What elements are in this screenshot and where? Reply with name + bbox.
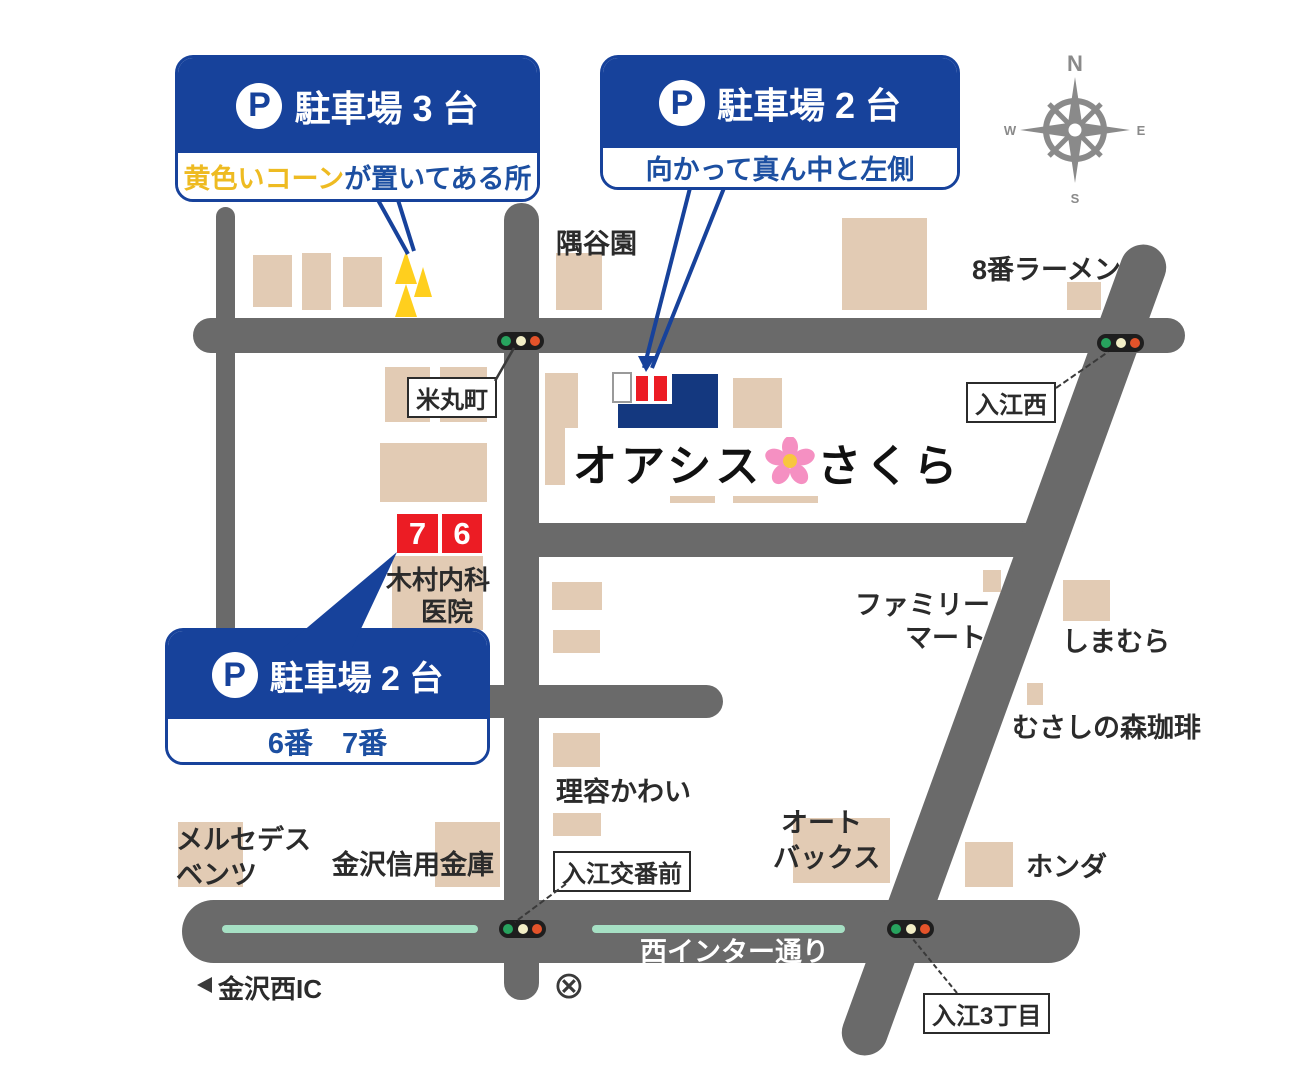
- traffic-light-irie3chome: [887, 920, 934, 938]
- parking-icon: P: [659, 80, 705, 126]
- building-shimamura: [1063, 580, 1110, 621]
- building: [553, 733, 600, 767]
- road-left-vertical: [216, 207, 235, 637]
- compass-rose: N E S W: [1003, 55, 1148, 210]
- callout-parking2-left-header: P 駐車場 2 台: [168, 631, 487, 719]
- intersection-label-irienishi: 入江西: [966, 382, 1056, 423]
- cherry-blossom-icon: [765, 437, 815, 487]
- parking-spot-red: [634, 374, 650, 403]
- building: [552, 582, 602, 610]
- callout-parking2-left-title: 駐車場 2 台: [270, 651, 444, 700]
- building: [733, 378, 782, 430]
- place-label-kimura-clinic-2: 医院: [421, 592, 473, 629]
- place-label-mercedes-2: ベンツ: [176, 853, 257, 892]
- place-label-autobacs-1: オート: [781, 801, 862, 840]
- place-label-musashino-mori-coffee: むさしの森珈琲: [1012, 706, 1201, 745]
- intersection-label-irie3chome: 入江3丁目: [923, 993, 1050, 1034]
- ic-direction-arrow-icon: [197, 977, 212, 993]
- road-middle-horizontal-lower: [488, 685, 723, 718]
- place-label-autobacs-2: バックス: [773, 836, 880, 875]
- road-middle-horizontal-upper: [505, 523, 1055, 557]
- yellow-cone-icon: [395, 284, 417, 317]
- road-label-nishi-inter-dori: 西インター通り: [640, 930, 829, 969]
- building-sumiyaen: [556, 253, 602, 310]
- compass-n: N: [1067, 55, 1083, 76]
- callout-parking3-note-rest: が置いてある所: [344, 157, 531, 196]
- callout-parking2-top-header: P 駐車場 2 台: [603, 58, 957, 148]
- road-middle-vertical: [504, 203, 539, 1000]
- road-median-line: [222, 925, 478, 933]
- place-label-kanazawa-nishi-ic: 金沢西IC: [218, 969, 322, 1006]
- building: [253, 255, 292, 307]
- parking-icon: P: [236, 83, 282, 129]
- traffic-light-irienishi: [1097, 334, 1144, 352]
- building-honda: [965, 842, 1013, 887]
- place-label-riyo-kawai: 理容かわい: [556, 770, 691, 809]
- callout-parking2-top: P 駐車場 2 台 向かって真ん中と左側: [600, 55, 960, 190]
- building-musashino: [1027, 683, 1043, 705]
- traffic-light-iriekobanmae: [499, 920, 546, 938]
- intersection-label-yonemarucho: 米丸町: [407, 377, 497, 418]
- place-label-sumiyaen: 隅谷園: [556, 222, 637, 261]
- building: [553, 630, 600, 653]
- traffic-light-yonemarucho: [497, 332, 544, 350]
- destination-name-part2: さくら: [817, 430, 961, 494]
- parking-number-6: 6: [442, 514, 482, 553]
- building: [302, 253, 331, 310]
- callout-parking2-left-note: 6番 7番: [168, 719, 487, 762]
- road-top-horizontal: [193, 318, 1185, 353]
- place-label-shimamura: しまむら: [1062, 620, 1170, 659]
- callout-parking2-top-title: 駐車場 2 台: [717, 77, 901, 129]
- compass-w: W: [1004, 123, 1017, 138]
- compass-s: S: [1071, 191, 1080, 206]
- destination-name-part1: オアシス: [573, 430, 763, 494]
- destination-name: オアシス さくら: [565, 428, 969, 496]
- parking-spot-red: [652, 374, 669, 403]
- place-label-mercedes-1: メルセデス: [176, 818, 311, 857]
- access-map: オアシス さくら 7 6 米丸町 入江西 入江交番前 入江3丁目 隅谷園 8番ラ…: [0, 0, 1303, 1080]
- callout-parking3-title: 駐車場 3 台: [294, 80, 478, 132]
- building: [380, 443, 487, 502]
- crossing-symbol: ⊗: [553, 963, 585, 1008]
- callout-parking2-top-note: 向かって真ん中と左側: [603, 148, 957, 187]
- parking-icon: P: [212, 652, 258, 698]
- callout-parking3: P 駐車場 3 台 黄色いコーンが置いてある所: [175, 55, 540, 202]
- building: [842, 218, 927, 310]
- callout-parking3-header: P 駐車場 3 台: [178, 58, 537, 153]
- callout-parking3-note: 黄色いコーンが置いてある所: [178, 153, 537, 199]
- place-label-honda: ホンダ: [1026, 845, 1107, 884]
- building: [343, 257, 382, 307]
- building: [553, 813, 601, 836]
- place-label-family-mart-2: マート: [905, 616, 986, 655]
- callout-parking2-left: P 駐車場 2 台 6番 7番: [165, 628, 490, 765]
- callout-parking3-note-highlight: 黄色いコーン: [183, 157, 344, 196]
- destination-building-wing: [618, 404, 718, 428]
- compass-e: E: [1137, 123, 1146, 138]
- intersection-label-iriekobanmae: 入江交番前: [553, 851, 691, 892]
- parking-spot-white: [612, 372, 632, 403]
- place-label-kanazawa-shinkin: 金沢信用金庫: [332, 843, 494, 882]
- parking-number-7: 7: [397, 514, 438, 553]
- place-label-hachiban-ramen: 8番ラーメン: [972, 248, 1121, 287]
